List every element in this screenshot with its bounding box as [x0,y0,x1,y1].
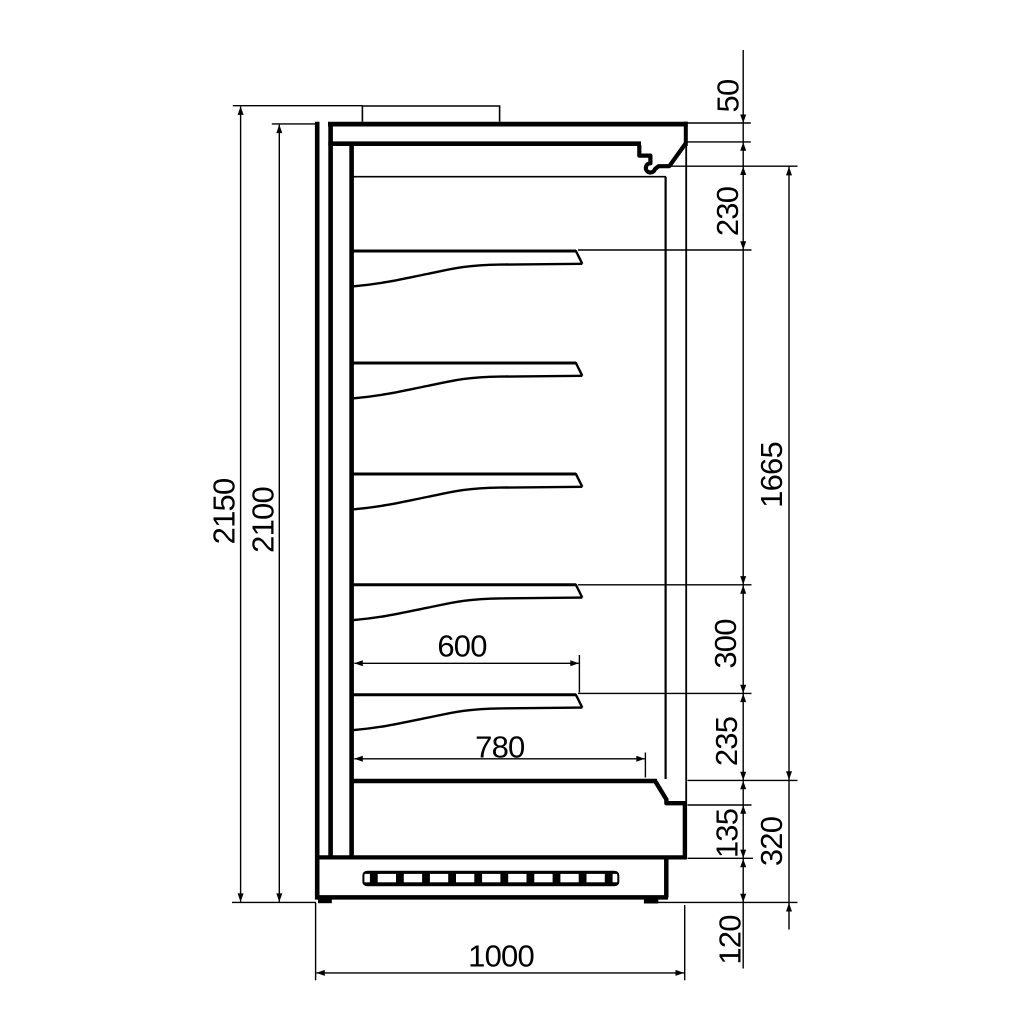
svg-text:230: 230 [710,186,745,236]
svg-text:1665: 1665 [754,442,789,508]
svg-text:600: 600 [437,629,487,664]
svg-text:300: 300 [708,619,743,669]
svg-text:2150: 2150 [207,478,242,544]
svg-text:1000: 1000 [468,939,534,974]
svg-text:780: 780 [475,730,525,765]
svg-text:235: 235 [709,717,744,766]
svg-text:2100: 2100 [246,487,281,553]
svg-text:50: 50 [711,79,746,112]
svg-text:120: 120 [713,915,748,965]
svg-text:320: 320 [754,816,789,866]
svg-text:135: 135 [710,809,745,858]
